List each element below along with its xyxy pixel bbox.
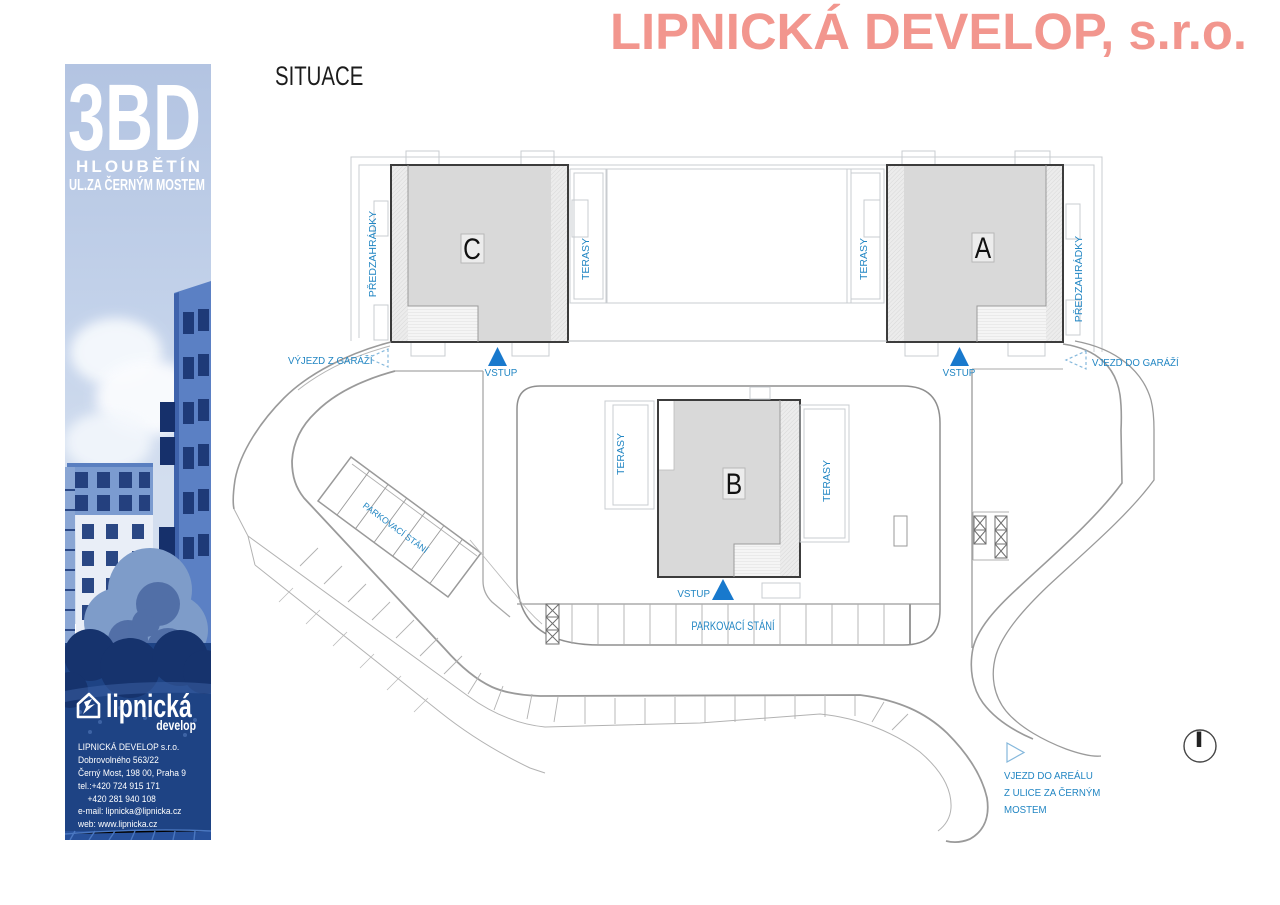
svg-text:Z ULICE ZA ČERNÝM: Z ULICE ZA ČERNÝM: [1004, 788, 1100, 799]
svg-text:MOSTEM: MOSTEM: [1004, 805, 1047, 816]
svg-text:TERASY: TERASY: [615, 433, 627, 475]
svg-text:B: B: [726, 467, 742, 501]
svg-text:SITUACE: SITUACE: [275, 61, 363, 91]
svg-text:+420 281 940 108: +420 281 940 108: [88, 794, 157, 804]
svg-text:e-mail: lipnicka@lipnicka.cz: e-mail: lipnicka@lipnicka.cz: [78, 806, 181, 816]
svg-text:VJEZD DO AREÁLU: VJEZD DO AREÁLU: [1004, 771, 1093, 782]
svg-text:Černý Most, 198 00, Praha 9: Černý Most, 198 00, Praha 9: [78, 768, 186, 778]
svg-text:web: www.lipnicka.cz: web: www.lipnicka.cz: [77, 819, 157, 829]
svg-text:tel.:+420 724 915 171: tel.:+420 724 915 171: [78, 781, 160, 791]
svg-text:C: C: [463, 232, 481, 266]
svg-text:HLOUBĚTÍN: HLOUBĚTÍN: [76, 157, 203, 176]
svg-text:A: A: [975, 231, 992, 265]
svg-text:PŘEDZAHRÁDKY: PŘEDZAHRÁDKY: [366, 211, 379, 297]
svg-text:LIPNICKÁ DEVELOP s.r.o.: LIPNICKÁ DEVELOP s.r.o.: [78, 742, 179, 752]
svg-text:PŘEDZAHRÁDKY: PŘEDZAHRÁDKY: [1072, 236, 1085, 322]
svg-text:TERASY: TERASY: [580, 238, 592, 280]
svg-text:TERASY: TERASY: [858, 238, 870, 280]
svg-text:LIPNICKÁ DEVELOP, s.r.o.: LIPNICKÁ DEVELOP, s.r.o.: [610, 3, 1247, 60]
svg-text:VSTUP: VSTUP: [677, 589, 710, 600]
svg-text:VJEZD DO GARÁŽÍ: VJEZD DO GARÁŽÍ: [1092, 358, 1179, 369]
svg-text:VSTUP: VSTUP: [943, 368, 976, 379]
svg-text:UL.ZA ČERNÝM MOSTEM: UL.ZA ČERNÝM MOSTEM: [69, 176, 205, 193]
svg-text:TERASY: TERASY: [821, 460, 833, 502]
svg-text:develop: develop: [156, 718, 196, 734]
svg-text:VSTUP: VSTUP: [485, 368, 518, 379]
svg-text:3BD: 3BD: [68, 65, 201, 170]
svg-text:VÝJEZD Z GARÁŽÍ: VÝJEZD Z GARÁŽÍ: [288, 356, 373, 367]
svg-text:PARKOVACÍ STÁNÍ: PARKOVACÍ STÁNÍ: [691, 619, 774, 633]
svg-text:Dobrovolného 563/22: Dobrovolného 563/22: [78, 755, 159, 765]
